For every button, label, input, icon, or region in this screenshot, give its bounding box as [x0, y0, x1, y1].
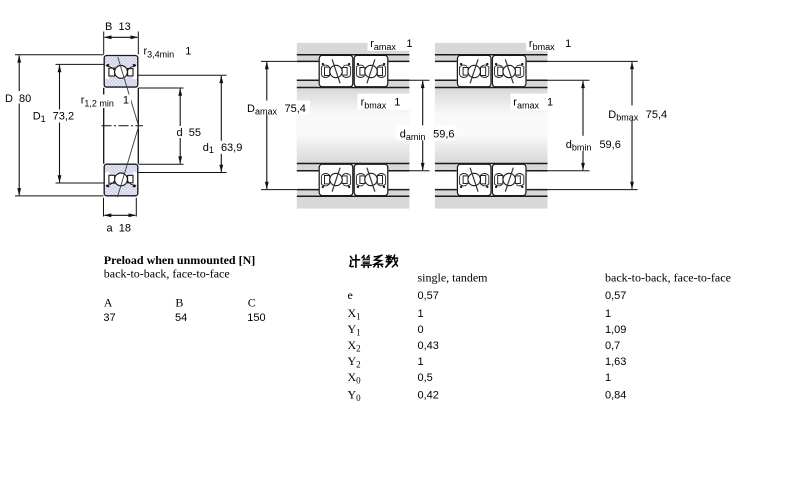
svg-text:X0: X0	[348, 370, 362, 386]
svg-text:a 18: a 18	[107, 223, 131, 235]
svg-text:e: e	[348, 288, 353, 302]
svg-text:d 55: d 55	[177, 127, 201, 139]
svg-text:B 13: B 13	[105, 21, 131, 33]
svg-text:0,57: 0,57	[605, 290, 626, 302]
svg-text:D173,2: D173,2	[33, 111, 74, 124]
svg-text:Y0: Y0	[348, 388, 362, 404]
svg-text:Y2: Y2	[348, 354, 361, 370]
svg-text:A: A	[104, 295, 113, 309]
svg-text:back-to-back, face-to-face: back-to-back, face-to-face	[605, 271, 731, 285]
svg-text:Preload when unmounted [N]: Preload when unmounted [N]	[104, 253, 255, 267]
svg-text:B: B	[175, 295, 183, 309]
svg-text:0: 0	[418, 324, 424, 336]
svg-text:1: 1	[605, 308, 611, 320]
svg-text:54: 54	[175, 312, 187, 324]
svg-text:1: 1	[605, 372, 611, 384]
svg-text:0,42: 0,42	[418, 390, 439, 402]
svg-text:0,43: 0,43	[418, 340, 439, 352]
svg-text:X2: X2	[348, 338, 361, 354]
svg-text:C: C	[248, 295, 256, 309]
svg-text:r3,4min1: r3,4min1	[144, 45, 192, 59]
svg-text:single, tandem: single, tandem	[418, 271, 489, 285]
svg-text:Y1: Y1	[348, 322, 361, 338]
svg-text:0,7: 0,7	[605, 340, 620, 352]
svg-text:0,5: 0,5	[418, 372, 433, 384]
svg-text:X1: X1	[348, 306, 361, 322]
svg-text:1: 1	[418, 308, 424, 320]
svg-text:37: 37	[103, 312, 115, 324]
svg-text:1: 1	[418, 356, 424, 368]
svg-text:1,09: 1,09	[605, 324, 626, 336]
svg-text:back-to-back, face-to-face: back-to-back, face-to-face	[104, 266, 230, 280]
svg-text:0,57: 0,57	[418, 290, 439, 302]
svg-text:150: 150	[247, 312, 265, 324]
svg-text:d163,9: d163,9	[203, 142, 243, 155]
svg-text:1,63: 1,63	[605, 356, 626, 368]
svg-text:D 80: D 80	[5, 93, 31, 105]
svg-text:0,84: 0,84	[605, 390, 626, 402]
